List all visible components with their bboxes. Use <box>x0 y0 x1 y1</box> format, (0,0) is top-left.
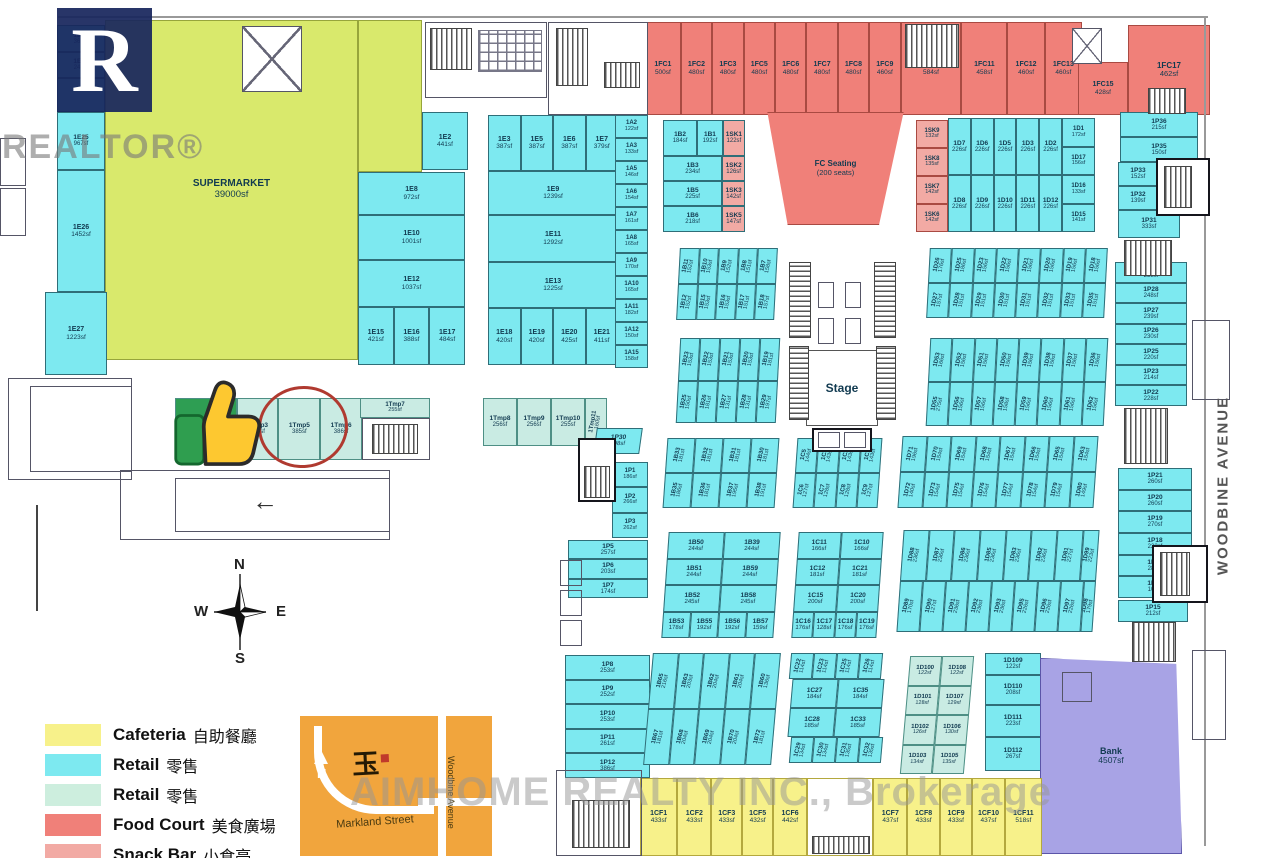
unit-label: 1C32135sf <box>863 742 879 758</box>
unit-1B60: 1B60136sf <box>750 653 780 709</box>
unit-1E27: 1E271223sf <box>45 292 107 375</box>
unit-label: 1D110208sf <box>1004 683 1023 696</box>
unit-label: 1D69154sf <box>955 446 971 462</box>
unit-label: 1P9252sf <box>600 685 615 698</box>
unit-label: 1D98179sf <box>1080 598 1096 614</box>
unit-label: 1C8128sf <box>839 483 854 498</box>
unit-1P10: 1P10253sf <box>565 704 650 729</box>
unit-label: 1E6387sf <box>561 136 577 151</box>
unit-label: 1D17156sf <box>1071 155 1085 167</box>
stairs-icon <box>1148 88 1186 114</box>
unit-label: 1C12181sf <box>809 565 825 578</box>
unit-1D101: 1D101128sf <box>905 686 940 716</box>
exterior-bay <box>1192 320 1230 400</box>
unit-label: 1E2441sf <box>437 134 453 149</box>
unit-label: 1B22153sf <box>701 351 716 367</box>
unit-label: 1P11261sf <box>600 734 615 747</box>
unit-label: 1FC3480sf <box>719 61 736 76</box>
unit-1A6: 1A6154sf <box>615 184 648 207</box>
zone-e-col-right: 1E3387sf1E5387sf1E6387sf1E7379sf1E91239s… <box>488 115 618 365</box>
unit-1B3: 1B3234sf <box>663 156 722 181</box>
unit-1D99: 1D99223sf <box>1080 530 1100 581</box>
zone-row: 1P1186sf <box>612 462 648 487</box>
unit-1E6: 1E6387sf <box>553 115 586 171</box>
unit-label: 1B51244sf <box>686 565 702 578</box>
unit-label: 1D97226sf <box>1062 598 1078 614</box>
unit-1D83: 1D83236sf <box>1003 530 1032 581</box>
unit-label: 1FC5480sf <box>751 61 768 76</box>
unit-1D19: 1D19156sf <box>1062 248 1086 283</box>
zone-row: 1D89170sf1D90127sf1D91236sf1D92236sf1D93… <box>896 581 1096 632</box>
unit-1E20: 1E20425sf <box>553 308 586 365</box>
zone-d81: 1D88236sf1D87236sf1D86236sf1D85236sf1D83… <box>896 530 1099 632</box>
compass-east-label: E <box>276 603 286 620</box>
unit-label: 1E18420sf <box>496 329 512 344</box>
unit-label: 1B53178sf <box>668 618 684 631</box>
unit-1FC1: 1FC1500sf <box>645 22 681 115</box>
stairs-icon <box>812 836 870 854</box>
unit-label: 1B31181sf <box>728 447 744 463</box>
unit-label: 1D99223sf <box>1082 547 1098 563</box>
zone-row: 1P33152sf <box>1118 162 1158 186</box>
unit-label: 1A8165sf <box>625 235 638 247</box>
unit-1A2: 1A2122sf <box>615 115 648 138</box>
unit-1SK5: 1SK5147sf <box>722 206 745 232</box>
zone-row: 1C29134sf1C30134sf1C31135sf1C32135sf <box>789 737 883 763</box>
unit-1FC6: 1FC6480sf <box>775 22 806 115</box>
dock-bay-inner <box>30 386 132 472</box>
unit-label: 1D80149sf <box>1075 482 1091 498</box>
unit-label: 1D21156sf <box>1021 257 1036 273</box>
unit-1B23: 1B23153sf <box>678 338 700 381</box>
unit-1C9: 1C9127sf <box>856 473 880 508</box>
escalator-icon <box>789 262 811 338</box>
unit-1E10: 1E101001sf <box>358 215 465 260</box>
zone-row: 1P21260sf <box>1118 468 1192 490</box>
unit-1D88: 1D88236sf <box>900 530 929 581</box>
unit-label: 1D16133sf <box>1071 183 1085 195</box>
unit-label: 1D60156sf <box>1042 396 1057 412</box>
unit-label: 1P22228sf <box>1143 389 1158 402</box>
unit-label: 1C23114sf <box>817 658 833 674</box>
zone-row: 1E101001sf <box>358 215 465 260</box>
unit-1E5: 1E5387sf <box>521 115 554 171</box>
zone-e-col-left: 1E8972sf1E101001sf1E121037sf1E15421sf1E1… <box>358 172 465 365</box>
unit-1P25: 1P25220sf <box>1115 344 1187 365</box>
legend-item-retail: Retail零售 <box>45 750 276 780</box>
unit-label: 1D37156sf <box>1066 352 1081 368</box>
unit-label: 1D63154sf <box>1077 446 1093 462</box>
unit-1D8: 1D8226sf <box>948 175 971 232</box>
unit-1P26: 1P26230sf <box>1115 324 1187 345</box>
unit-1P3: 1P3262sf <box>612 513 648 538</box>
unit-1D15: 1D15141sf <box>1062 204 1095 233</box>
unit-label: 1D105135sf <box>940 753 959 765</box>
unit-1D52: 1D52156sf <box>950 338 975 382</box>
legend-label-en: Cafeteria <box>113 725 186 745</box>
unit-1SK1: 1SK1122sf <box>723 120 745 156</box>
unit-label: 1P27239sf <box>1143 307 1158 320</box>
zone-d-grid: 1D7226sf1D6226sf1D5226sf1D3226sf1D2226sf… <box>948 118 1062 232</box>
unit-label: 1C15200sf <box>807 592 823 605</box>
unit-label: SUPERMARKET39000sf <box>193 179 270 200</box>
legend-label-en: Retail <box>113 755 159 775</box>
unit-1D62: 1D62156sf <box>1081 382 1106 426</box>
unit-1SK6: 1SK6142sf <box>916 204 948 232</box>
unit-label: 1D85236sf <box>984 547 1000 563</box>
unit-1P8: 1P8253sf <box>565 655 650 680</box>
unit-label: 1P2266sf <box>623 494 636 506</box>
zone-row: 1B6218sf1SK5147sf <box>663 206 745 232</box>
unit-1B30: 1B30181sf <box>749 438 779 473</box>
unit-1B29: 1B29197sf <box>756 381 778 424</box>
unit-label: 1C19176sf <box>858 618 874 631</box>
unit-label: 1P20260sf <box>1147 494 1162 507</box>
legend-swatch <box>45 784 101 806</box>
zone-row: 1Tmp7255sf <box>360 398 430 418</box>
unit-1C35: 1C35184sf <box>836 679 885 708</box>
unit-label: 1D18156sf <box>1088 257 1103 273</box>
unit-label: 1A3133sf <box>625 143 638 155</box>
unit-label: 1C31135sf <box>840 742 856 758</box>
unit-label: 1A9170sf <box>625 258 638 270</box>
unit-1B9: 1B9152sf <box>717 248 738 284</box>
stairs-icon <box>584 466 610 498</box>
unit-1C22: 1C22114sf <box>789 653 814 679</box>
unit-label: 1D9226sf <box>975 197 990 210</box>
unit-1P27: 1P27239sf <box>1115 303 1187 324</box>
thumbs-up-icon <box>172 362 284 484</box>
unit-label: 1B70204sf <box>727 729 743 745</box>
zone-row: 1A9170sf <box>615 253 648 276</box>
unit-label: 1P33152sf <box>1130 167 1145 180</box>
zone-tmp7: 1Tmp7255sf <box>360 398 430 418</box>
legend: Cafeteria自助餐廳Retail零售Retail零售Food Court美… <box>45 720 276 858</box>
unit-label: 1SK9132sf <box>924 128 939 140</box>
unit-label: 1B61204sf <box>732 673 748 689</box>
unit-1FC15: 1FC15428sf <box>1078 62 1128 115</box>
legend-label-zh: 小食亭 <box>203 843 251 858</box>
unit-label: 1B36181sf <box>698 482 714 498</box>
unit-1B22: 1B22153sf <box>698 338 720 381</box>
unit-1A11: 1A11182sf <box>615 299 648 322</box>
unit-1B37: 1B37195sf <box>719 473 749 508</box>
unit-label: 1P10253sf <box>600 710 615 723</box>
unit-label: 1B8151sf <box>740 258 755 273</box>
unit-1D6: 1D6226sf <box>971 118 994 175</box>
zone-row: 1P15212sf <box>1118 600 1188 622</box>
unit-1E3: 1E3387sf <box>488 115 521 171</box>
unit-1E19: 1E19420sf <box>521 308 554 365</box>
legend-swatch <box>45 844 101 858</box>
zone-p-colA: 1P36215sf1P35150sf <box>1120 112 1198 162</box>
zone-row: 1B53178sf1B55192sf1B56192sf1B57159sf <box>661 612 775 639</box>
unit-1P11: 1P11261sf <box>565 729 650 754</box>
legend-swatch <box>45 754 101 776</box>
unit-1D35: 1D35151sf <box>1082 283 1106 318</box>
unit-label: 1A11182sf <box>624 304 638 316</box>
unit-1FC5: 1FC5480sf <box>744 22 775 115</box>
unit-label: 1P35150sf <box>1151 143 1166 156</box>
unit-Stage: Stage <box>806 350 878 426</box>
unit-label: 1C7128sf <box>818 483 833 498</box>
unit-label: 1B2184sf <box>673 131 688 144</box>
legend-label-zh: 美食廣場 <box>212 813 276 837</box>
unit-label: 1D8226sf <box>952 197 967 210</box>
unit-1E18: 1E18420sf <box>488 308 521 365</box>
unit-label: 1E91239sf <box>543 186 563 201</box>
unit-1FC2: 1FC2480sf <box>681 22 712 115</box>
unit-label: 1C11166sf <box>811 539 827 552</box>
unit-1B21: 1B21153sf <box>718 338 740 381</box>
unit-1Tmp9: 1Tmp9256sf <box>517 398 551 446</box>
unit-1D59: 1D59156sf <box>1015 382 1040 426</box>
unit-label: 1D88236sf <box>907 547 923 563</box>
unit-label: 1D83236sf <box>1010 547 1026 563</box>
unit-1D9: 1D9226sf <box>971 175 994 232</box>
escalator-icon <box>789 346 809 420</box>
exterior-bay <box>1192 650 1226 740</box>
unit-label: 1B38191sf <box>754 482 770 498</box>
unit-label: 1C28185sf <box>803 716 820 729</box>
zone-row: 1P10253sf <box>565 704 650 729</box>
zone-row: 1B3234sf1SK2126sf <box>663 156 745 181</box>
zone-e26: 1E261452sf <box>57 170 105 292</box>
zone-c22c: 1C29134sf1C30134sf1C31135sf1C32135sf <box>789 737 883 763</box>
zone-row: 1P20260sf <box>1118 490 1192 512</box>
unit-label: 1FC13460sf <box>1053 61 1074 76</box>
utility-box <box>560 620 582 646</box>
unit-1P5: 1P5257sf <box>568 540 648 559</box>
zone-a-col: 1A2122sf1A3133sf1A5146sf1A6154sf1A7161sf… <box>615 115 648 368</box>
zone-row: 1A6154sf <box>615 184 648 207</box>
zone-row: 1D71196sf1D70154sf1D69154sf1D68154sf1D67… <box>900 436 1099 472</box>
zone-row <box>358 20 422 172</box>
unit-label: 1C9127sf <box>860 483 875 498</box>
zone-row: 1E131225sf <box>488 262 618 308</box>
unit-label: 1P25220sf <box>1143 348 1158 361</box>
unit-1D20: 1D20156sf <box>1039 248 1063 283</box>
zone-row: 1SK9132sf <box>916 120 948 148</box>
unit-1SK2: 1SK2126sf <box>722 156 745 181</box>
unit-label: 1E131225sf <box>543 278 563 293</box>
unit-1B53: 1B53178sf <box>661 612 691 639</box>
unit-label: 1P23214sf <box>1143 368 1158 381</box>
unit-1C17: 1C17128sf <box>813 612 836 639</box>
zone-row: 1A8165sf <box>615 230 648 253</box>
zone-row: 1E261452sf <box>57 170 105 292</box>
unit-label: 1P19270sf <box>1147 515 1162 528</box>
unit-label: 1B55192sf <box>696 618 712 631</box>
unit-label: 1B20153sf <box>741 351 756 367</box>
unit-1A12: 1A12150sf <box>615 322 648 345</box>
zone-row: 1P26230sf <box>1115 324 1187 345</box>
unit-label: 1A15158sf <box>624 350 638 362</box>
utility-box <box>560 590 582 616</box>
unit-label: Bank4507sf <box>1098 747 1124 766</box>
unit-label: 1A10165sf <box>624 281 638 293</box>
brokerage-watermark: AIMHOME REALTY INC., Brokerage <box>350 770 1052 815</box>
compass-rose: N S E W <box>192 556 288 668</box>
tables-icon <box>478 30 542 72</box>
unit-1C12: 1C12181sf <box>795 559 839 586</box>
unit-label: 1D111223sf <box>1004 714 1022 727</box>
unit-1D75: 1D75154sf <box>946 472 973 508</box>
unit-label: 1B25150sf <box>679 394 694 410</box>
legend-label-en: Retail <box>113 785 159 805</box>
unit-1B57: 1B57159sf <box>745 612 775 639</box>
legend-label-zh: 自助餐廳 <box>193 723 257 747</box>
unit-1D36: 1D36156sf <box>1084 338 1109 382</box>
unit-label: 1C20200sf <box>850 592 866 605</box>
zone-row: 1D102126sf1D106130sf <box>902 715 969 745</box>
unit-label: 1P15212sf <box>1145 604 1160 617</box>
unit-1C31: 1C31135sf <box>835 737 860 763</box>
unit-label: 1D7226sf <box>952 140 967 153</box>
stairs-icon <box>1164 166 1192 208</box>
unit-label: 1SK3142sf <box>726 187 742 200</box>
unit-1C11: 1C11166sf <box>797 532 841 559</box>
unit-1E2: 1E2441sf <box>422 112 468 170</box>
unit-1C33: 1C33185sf <box>833 708 882 737</box>
zone-row: 1A11182sf <box>615 299 648 322</box>
zone-row: 1B65216sf1B63203sf1B62204sf1B61204sf1B60… <box>648 653 781 709</box>
unit-1D98: 1D98179sf <box>1080 581 1096 632</box>
unit-label: 1B35186sf <box>670 482 686 498</box>
zone-row: 1B33181sf1B32181sf1B31181sf1B30181sf <box>665 438 779 473</box>
unit-label: 1Tmp8256sf <box>490 415 511 428</box>
unit-label: 1FC15428sf <box>1092 81 1113 96</box>
planter <box>818 282 834 308</box>
unit-label: 1D89170sf <box>902 598 918 614</box>
unit-label: 1B29197sf <box>759 394 774 410</box>
unit-label: 1D27157sf <box>931 292 946 308</box>
unit-label: 1SK1122sf <box>726 131 742 144</box>
unit-label: 1D3226sf <box>1020 140 1035 153</box>
unit-1D76: 1D76154sf <box>971 472 998 508</box>
zone-row: 1SK7142sf <box>916 176 948 204</box>
unit-FC-Seating: FC Seating(200 seats) <box>763 112 908 225</box>
zone-row: 1P9252sf <box>565 680 650 705</box>
zone-p15: 1P15212sf <box>1118 600 1188 622</box>
unit-label: 1B28131sf <box>739 394 754 410</box>
unit-1C21: 1C21181sf <box>838 559 882 586</box>
unit-1B27: 1B27131sf <box>716 381 738 424</box>
zone-row: 1D100122sf1D108122sf <box>908 656 975 686</box>
unit-1D50: 1D50156sf <box>995 338 1020 382</box>
zone-row: 1D101128sf1D107129sf <box>905 686 972 716</box>
zone-row: 1Tmp8256sf1Tmp9256sf1Tmp10255sf <box>483 398 585 446</box>
unit-1B5: 1B5225sf <box>663 181 722 206</box>
mall-floor-plan-page: { "watermarks": { "logo_letter": "R", "r… <box>0 0 1277 858</box>
unit-1D18: 1D18156sf <box>1084 248 1108 283</box>
utility-box <box>560 560 582 586</box>
compass-south-label: S <box>235 650 245 667</box>
unit-1A5: 1A5146sf <box>615 161 648 184</box>
unit-1SK8: 1SK8135sf <box>916 148 948 176</box>
zone-row: 1A5146sf <box>615 161 648 184</box>
zone-row: 1D1172sf <box>1062 118 1095 147</box>
unit-1B12: 1B12152sf <box>676 284 697 320</box>
map-north-label: N <box>317 766 326 781</box>
unit-label: 1P5257sf <box>601 543 616 556</box>
unit-label: 1D51156sf <box>977 352 992 368</box>
zone-row: 1SK8135sf <box>916 148 948 176</box>
escalator-icon <box>874 262 896 338</box>
unit-1D100: 1D100122sf <box>908 656 943 686</box>
unit-label: 1SK6142sf <box>924 212 939 224</box>
zone-row: 1FC1500sf1FC2480sf1FC3480sf1FC5480sf1FC6… <box>645 22 1082 115</box>
unit-1D87: 1D87236sf <box>926 530 955 581</box>
zone-row: 1C15200sf1C20200sf <box>793 585 880 612</box>
unit-label: 1D36156sf <box>1088 352 1103 368</box>
unit-label: 1B11152sf <box>681 258 696 274</box>
unit-1A10: 1A10165sf <box>615 276 648 299</box>
unit-1D38: 1D38156sf <box>1039 338 1064 382</box>
unit-label: 1A7161sf <box>625 212 638 224</box>
unit-1C30: 1C30134sf <box>812 737 837 763</box>
unit-label: 1B62204sf <box>707 673 723 689</box>
unit-1D108: 1D108122sf <box>940 656 975 686</box>
unit-label: 1B12152sf <box>679 294 694 310</box>
unit-1FC7: 1FC7480sf <box>806 22 837 115</box>
unit-label: 1D58158sf <box>997 396 1012 412</box>
unit-label: 1B17151sf <box>738 294 753 310</box>
unit-1D22: 1D22156sf <box>995 248 1019 283</box>
unit-1D68: 1D68154sf <box>974 436 1001 472</box>
unit-label: 1D20156sf <box>1044 257 1059 273</box>
zone-row: 1C11166sf1C10166sf <box>797 532 884 559</box>
zone-row: 1E8972sf <box>358 172 465 215</box>
unit-1D71: 1D71196sf <box>900 436 927 472</box>
unit-1D26: 1D26176sf <box>928 248 952 283</box>
unit-1D65: 1D65154sf <box>1047 436 1074 472</box>
unit-label: 1C35184sf <box>852 687 869 700</box>
unit-label: 1E121037sf <box>402 276 422 291</box>
unit-1B7: 1B7158sf <box>756 248 777 284</box>
unit-label: 1B65216sf <box>655 673 671 689</box>
unit-label: 1D108122sf <box>947 665 966 677</box>
zone-row: 1C22114sf1C23114sf1C25114sf1C26114sf <box>789 653 883 679</box>
unit-label: 1B50244sf <box>688 539 704 552</box>
zone-row: 1FC15428sf <box>1078 62 1128 115</box>
unit-label: 1D50156sf <box>999 352 1014 368</box>
compass-north-label: N <box>234 556 245 573</box>
zone-row: 1P27239sf <box>1115 303 1187 324</box>
compass-west-label: W <box>194 603 208 620</box>
zone-fc-seating: FC Seating(200 seats) <box>763 112 908 225</box>
unit-1D102: 1D102126sf <box>902 715 937 745</box>
unit-1D111: 1D111223sf <box>985 705 1041 737</box>
unit-label: 1C22114sf <box>794 658 810 674</box>
legend-item-snack-bar: Snack Bar小食亭 <box>45 840 276 858</box>
unit-1B19: 1B19181sf <box>758 338 780 381</box>
zone-c22a: 1C22114sf1C23114sf1C25114sf1C26114sf <box>789 653 883 679</box>
unit-label: 1FC7480sf <box>813 61 830 76</box>
zone-row: 1P32139sf <box>1118 186 1158 210</box>
unit-label: 1D56156sf <box>953 396 968 412</box>
unit-1D106: 1D106130sf <box>934 715 969 745</box>
planter <box>845 318 861 344</box>
unit-label: 1D35151sf <box>1086 292 1101 308</box>
unit-1Tmp7: 1Tmp7255sf <box>360 398 430 418</box>
unit-1FC11: 1FC11458sf <box>961 22 1007 115</box>
unit-label: 1D67154sf <box>1004 446 1020 462</box>
unit-label: 1D96226sf <box>1040 598 1056 614</box>
zone-row: FC Seating(200 seats) <box>763 112 908 225</box>
unit-label: 1B9152sf <box>720 258 735 273</box>
unit-label: 1B16153sf <box>718 294 733 310</box>
